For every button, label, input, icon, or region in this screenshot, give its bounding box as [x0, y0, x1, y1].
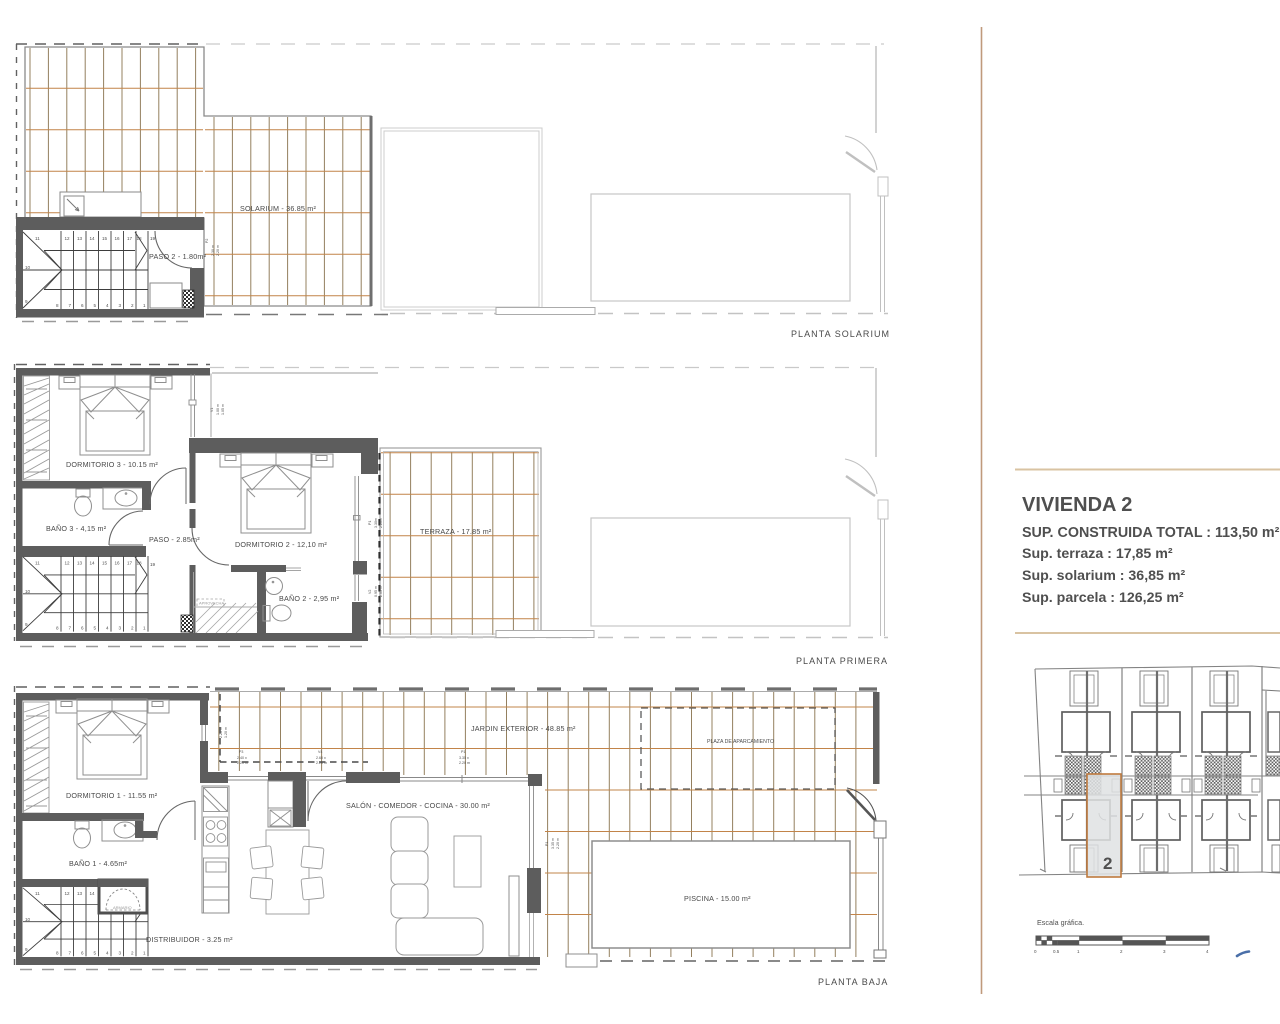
svg-text:Sup. parcela : 126,25 m²: Sup. parcela : 126,25 m² [1022, 590, 1184, 606]
svg-text:P1: P1 [368, 521, 372, 525]
svg-text:PLANTA SOLARIUM: PLANTA SOLARIUM [791, 329, 890, 339]
svg-text:PLANTA PRIMERA: PLANTA PRIMERA [796, 656, 888, 666]
svg-text:JARDIN EXTERIOR - 48.85 m²: JARDIN EXTERIOR - 48.85 m² [471, 724, 576, 733]
svg-text:V1: V1 [210, 408, 214, 412]
svg-text:APROVECHA.: APROVECHA. [199, 601, 225, 606]
svg-text:Sup. terraza : 17,85 m²: Sup. terraza : 17,85 m² [1022, 546, 1173, 562]
svg-text:PLAZA DE APARCAMIENTO: PLAZA DE APARCAMIENTO [707, 739, 774, 745]
svg-text:DORMITORIO 1 - 11.55 m²: DORMITORIO 1 - 11.55 m² [66, 791, 158, 800]
svg-text:BAÑO 2 - 2,95 m²: BAÑO 2 - 2,95 m² [279, 594, 340, 603]
svg-text:DORMITORIO 3 - 10.15 m²: DORMITORIO 3 - 10.15 m² [66, 460, 158, 469]
svg-text:19: 19 [150, 236, 156, 241]
svg-text:PISCINA - 15.00 m²: PISCINA - 15.00 m² [684, 894, 751, 903]
svg-text:DORMITORIO 2 - 12,10 m²: DORMITORIO 2 - 12,10 m² [235, 540, 327, 549]
svg-text:1.00 m: 1.00 m [216, 404, 220, 415]
svg-text:PLANTA BAJA: PLANTA BAJA [818, 977, 888, 987]
svg-text:Escala gráfica.: Escala gráfica. [1037, 918, 1084, 927]
svg-text:1.05 m: 1.05 m [221, 404, 225, 415]
svg-text:2.20 m: 2.20 m [556, 838, 560, 849]
svg-text:19: 19 [150, 562, 156, 567]
svg-text:2.20 m: 2.20 m [316, 761, 327, 765]
svg-text:2.05 m: 2.05 m [379, 586, 383, 597]
svg-text:V2: V2 [368, 590, 372, 594]
svg-text:3.35 m: 3.35 m [551, 838, 555, 849]
svg-text:3.30m: 3.30m [374, 518, 378, 528]
svg-text:BAÑO 3 - 4,15 m²: BAÑO 3 - 4,15 m² [46, 524, 107, 533]
svg-text:P3: P3 [239, 750, 243, 754]
svg-text:VIVIENDA 2: VIVIENDA 2 [1022, 494, 1132, 516]
svg-text:SALÓN - COMEDOR - COCINA - 30.: SALÓN - COMEDOR - COCINA - 30.00 m² [346, 801, 490, 810]
svg-text:SOLARIUM - 36.85 m²: SOLARIUM - 36.85 m² [240, 204, 316, 213]
svg-text:2.20 m: 2.20 m [216, 245, 220, 256]
svg-text:PASO 2 - 1.80m²: PASO 2 - 1.80m² [149, 252, 207, 261]
svg-text:3.35 x: 3.35 x [459, 756, 469, 760]
svg-text:DISTRIBUIDOR - 3.25 m²: DISTRIBUIDOR - 3.25 m² [146, 935, 233, 944]
svg-text:2.60 x: 2.60 x [316, 756, 326, 760]
svg-text:0.95 m: 0.95 m [374, 586, 378, 597]
svg-text:SUP. CONSTRUIDA TOTAL : 113,50: SUP. CONSTRUIDA TOTAL : 113,50 m² [1022, 525, 1280, 541]
svg-text:V4: V4 [318, 750, 322, 754]
svg-text:0.5: 0.5 [1053, 949, 1060, 954]
svg-text:PASO - 2.85m²: PASO - 2.85m² [149, 535, 200, 544]
svg-text:BAÑO 1 - 4.65m²: BAÑO 1 - 4.65m² [69, 859, 128, 868]
svg-text:2.30 m: 2.30 m [211, 245, 215, 256]
svg-text:P1: P1 [545, 842, 549, 846]
svg-text:P2: P2 [205, 239, 209, 243]
svg-text:2.20 m: 2.20 m [459, 761, 470, 765]
svg-text:2.40 x: 2.40 x [237, 756, 247, 760]
svg-text:TERRAZA - 17.85 m²: TERRAZA - 17.85 m² [420, 527, 492, 536]
svg-text:2: 2 [1103, 854, 1112, 873]
svg-text:2.20 m: 2.20 m [219, 727, 223, 738]
svg-text:2.20 m: 2.20 m [237, 761, 248, 765]
svg-text:Sup. solarium : 36,85 m²: Sup. solarium : 36,85 m² [1022, 568, 1185, 584]
svg-text:P1: P1 [461, 750, 465, 754]
svg-text:2.20m: 2.20m [379, 518, 383, 528]
svg-text:1.20 m: 1.20 m [224, 727, 228, 738]
svg-text:ARMARIO: ARMARIO [113, 905, 132, 910]
